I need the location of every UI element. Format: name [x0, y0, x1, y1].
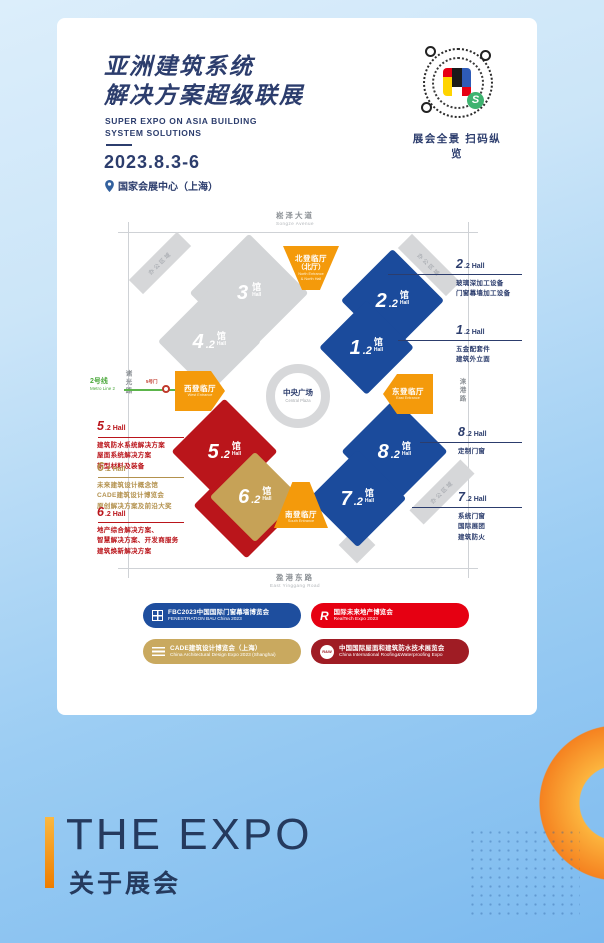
location-pin-icon: [105, 180, 114, 192]
callout-hall-8-2: 8.2 Hall: [458, 426, 487, 439]
expo-legend: FBC2023中国国际门窗幕墙博览会 FENESTRATION BAU Chin…: [143, 603, 469, 664]
metro-station-icon: [162, 385, 170, 393]
realtech-r-icon: R: [320, 609, 329, 623]
expo-venue: 国家会展中心（上海）: [105, 178, 218, 193]
legend-cade[interactable]: CADE建筑设计博览会（上海） China Architectural Desi…: [143, 639, 301, 664]
venue-map: 崧泽大道 Songze Avenue 盈港东路 East Yinggang Ro…: [90, 200, 530, 600]
metro-line-label: 2号线 Metro Line 2: [90, 378, 115, 392]
callout-hall-6-2-realtech: 6.2 Hall: [97, 506, 126, 519]
callout-text-8-2: 定制门窗: [458, 447, 485, 457]
section-accent-bar: [45, 817, 54, 888]
callout-text-1-2: 五金配套件 建筑外立面: [456, 345, 490, 366]
map-frame-north: [118, 232, 478, 233]
map-frame-south: [118, 568, 478, 569]
expo-cube-logo: [443, 68, 471, 96]
callout-leader-line: [388, 274, 522, 275]
callout-leader-line: [412, 507, 522, 508]
road-south: 盈港东路 East Yinggang Road: [240, 572, 350, 588]
qr-finder-icon: [425, 46, 436, 57]
legend-roofing-waterproofing[interactable]: R&W 中国国际屋面和建筑防水技术展览会 China International…: [311, 639, 469, 664]
title-line-2: 解决方案超级联展: [104, 81, 304, 110]
callout-leader-line: [420, 442, 522, 443]
qr-block[interactable]: S 展会全景 扫码纵览: [407, 44, 507, 161]
decor-dot-grid: [468, 828, 580, 916]
poster-card: 亚洲建筑系统 解决方案超级联展 SUPER EXPO ON ASIA BUILD…: [57, 18, 537, 715]
metro-gate-label: 5号门: [146, 379, 158, 385]
subtitle-line-2: SYSTEM SOLUTIONS: [105, 127, 257, 139]
callout-hall-6-2-cade: 6.2 Hall: [97, 461, 126, 474]
callout-text-7-2: 系统门窗 国际展团 建筑防火: [458, 512, 485, 543]
miniprogram-badge-icon: S: [467, 92, 484, 109]
qr-finder-icon: [421, 102, 432, 113]
section-title-en: THE EXPO: [66, 810, 313, 860]
cade-logo-icon: [152, 647, 165, 656]
callout-leader-line: [98, 522, 184, 523]
map-frame-west: [128, 222, 129, 578]
venue-label: 国家会展中心（上海）: [118, 178, 218, 193]
title-divider: [106, 144, 132, 146]
road-west: 诸光路: [122, 370, 132, 396]
callout-hall-2-2: 2.2 Hall: [456, 258, 485, 271]
road-east: 涞港路: [456, 378, 466, 404]
callout-hall-1-2: 1.2 Hall: [456, 324, 485, 337]
expo-title-en: SUPER EXPO ON ASIA BUILDING SYSTEM SOLUT…: [105, 115, 257, 140]
callout-hall-7-2: 7.2 Hall: [458, 491, 487, 504]
qr-code[interactable]: S: [417, 44, 497, 124]
section-title-zh: 关于展会: [69, 864, 181, 900]
window-grid-icon: [152, 610, 163, 621]
expo-date: 2023.8.3-6: [104, 152, 200, 173]
qr-caption: 展会全景 扫码纵览: [407, 131, 507, 161]
title-line-1: 亚洲建筑系统: [104, 52, 304, 81]
road-north: 崧泽大道 Songze Avenue: [240, 210, 350, 226]
callout-leader-line: [98, 477, 184, 478]
rw-logo-icon: R&W: [320, 645, 334, 659]
central-plaza: 中央广场 Central Plaza: [266, 364, 330, 428]
callout-text-2-2: 玻璃深加工设备 门窗幕墙加工设备: [456, 279, 510, 300]
legend-realtech[interactable]: R 国际未来地产博览会 RealTech Expo 2023: [311, 603, 469, 628]
expo-title-zh: 亚洲建筑系统 解决方案超级联展: [104, 52, 304, 111]
callout-text-6-2-realtech: 地产综合解决方案、 智慧解决方案、开发商服务 建筑焕新解决方案: [97, 526, 179, 557]
qr-finder-icon: [480, 50, 491, 61]
subtitle-line-1: SUPER EXPO ON ASIA BUILDING: [105, 115, 257, 127]
callout-leader-line: [98, 437, 184, 438]
callout-hall-5-2: 5.2 Hall: [97, 420, 126, 433]
expo-poster-page: 亚洲建筑系统 解决方案超级联展 SUPER EXPO ON ASIA BUILD…: [0, 0, 604, 943]
callout-leader-line: [398, 340, 522, 341]
legend-fbc[interactable]: FBC2023中国国际门窗幕墙博览会 FENESTRATION BAU Chin…: [143, 603, 301, 628]
office-area-nw: 办公区域: [129, 232, 191, 294]
